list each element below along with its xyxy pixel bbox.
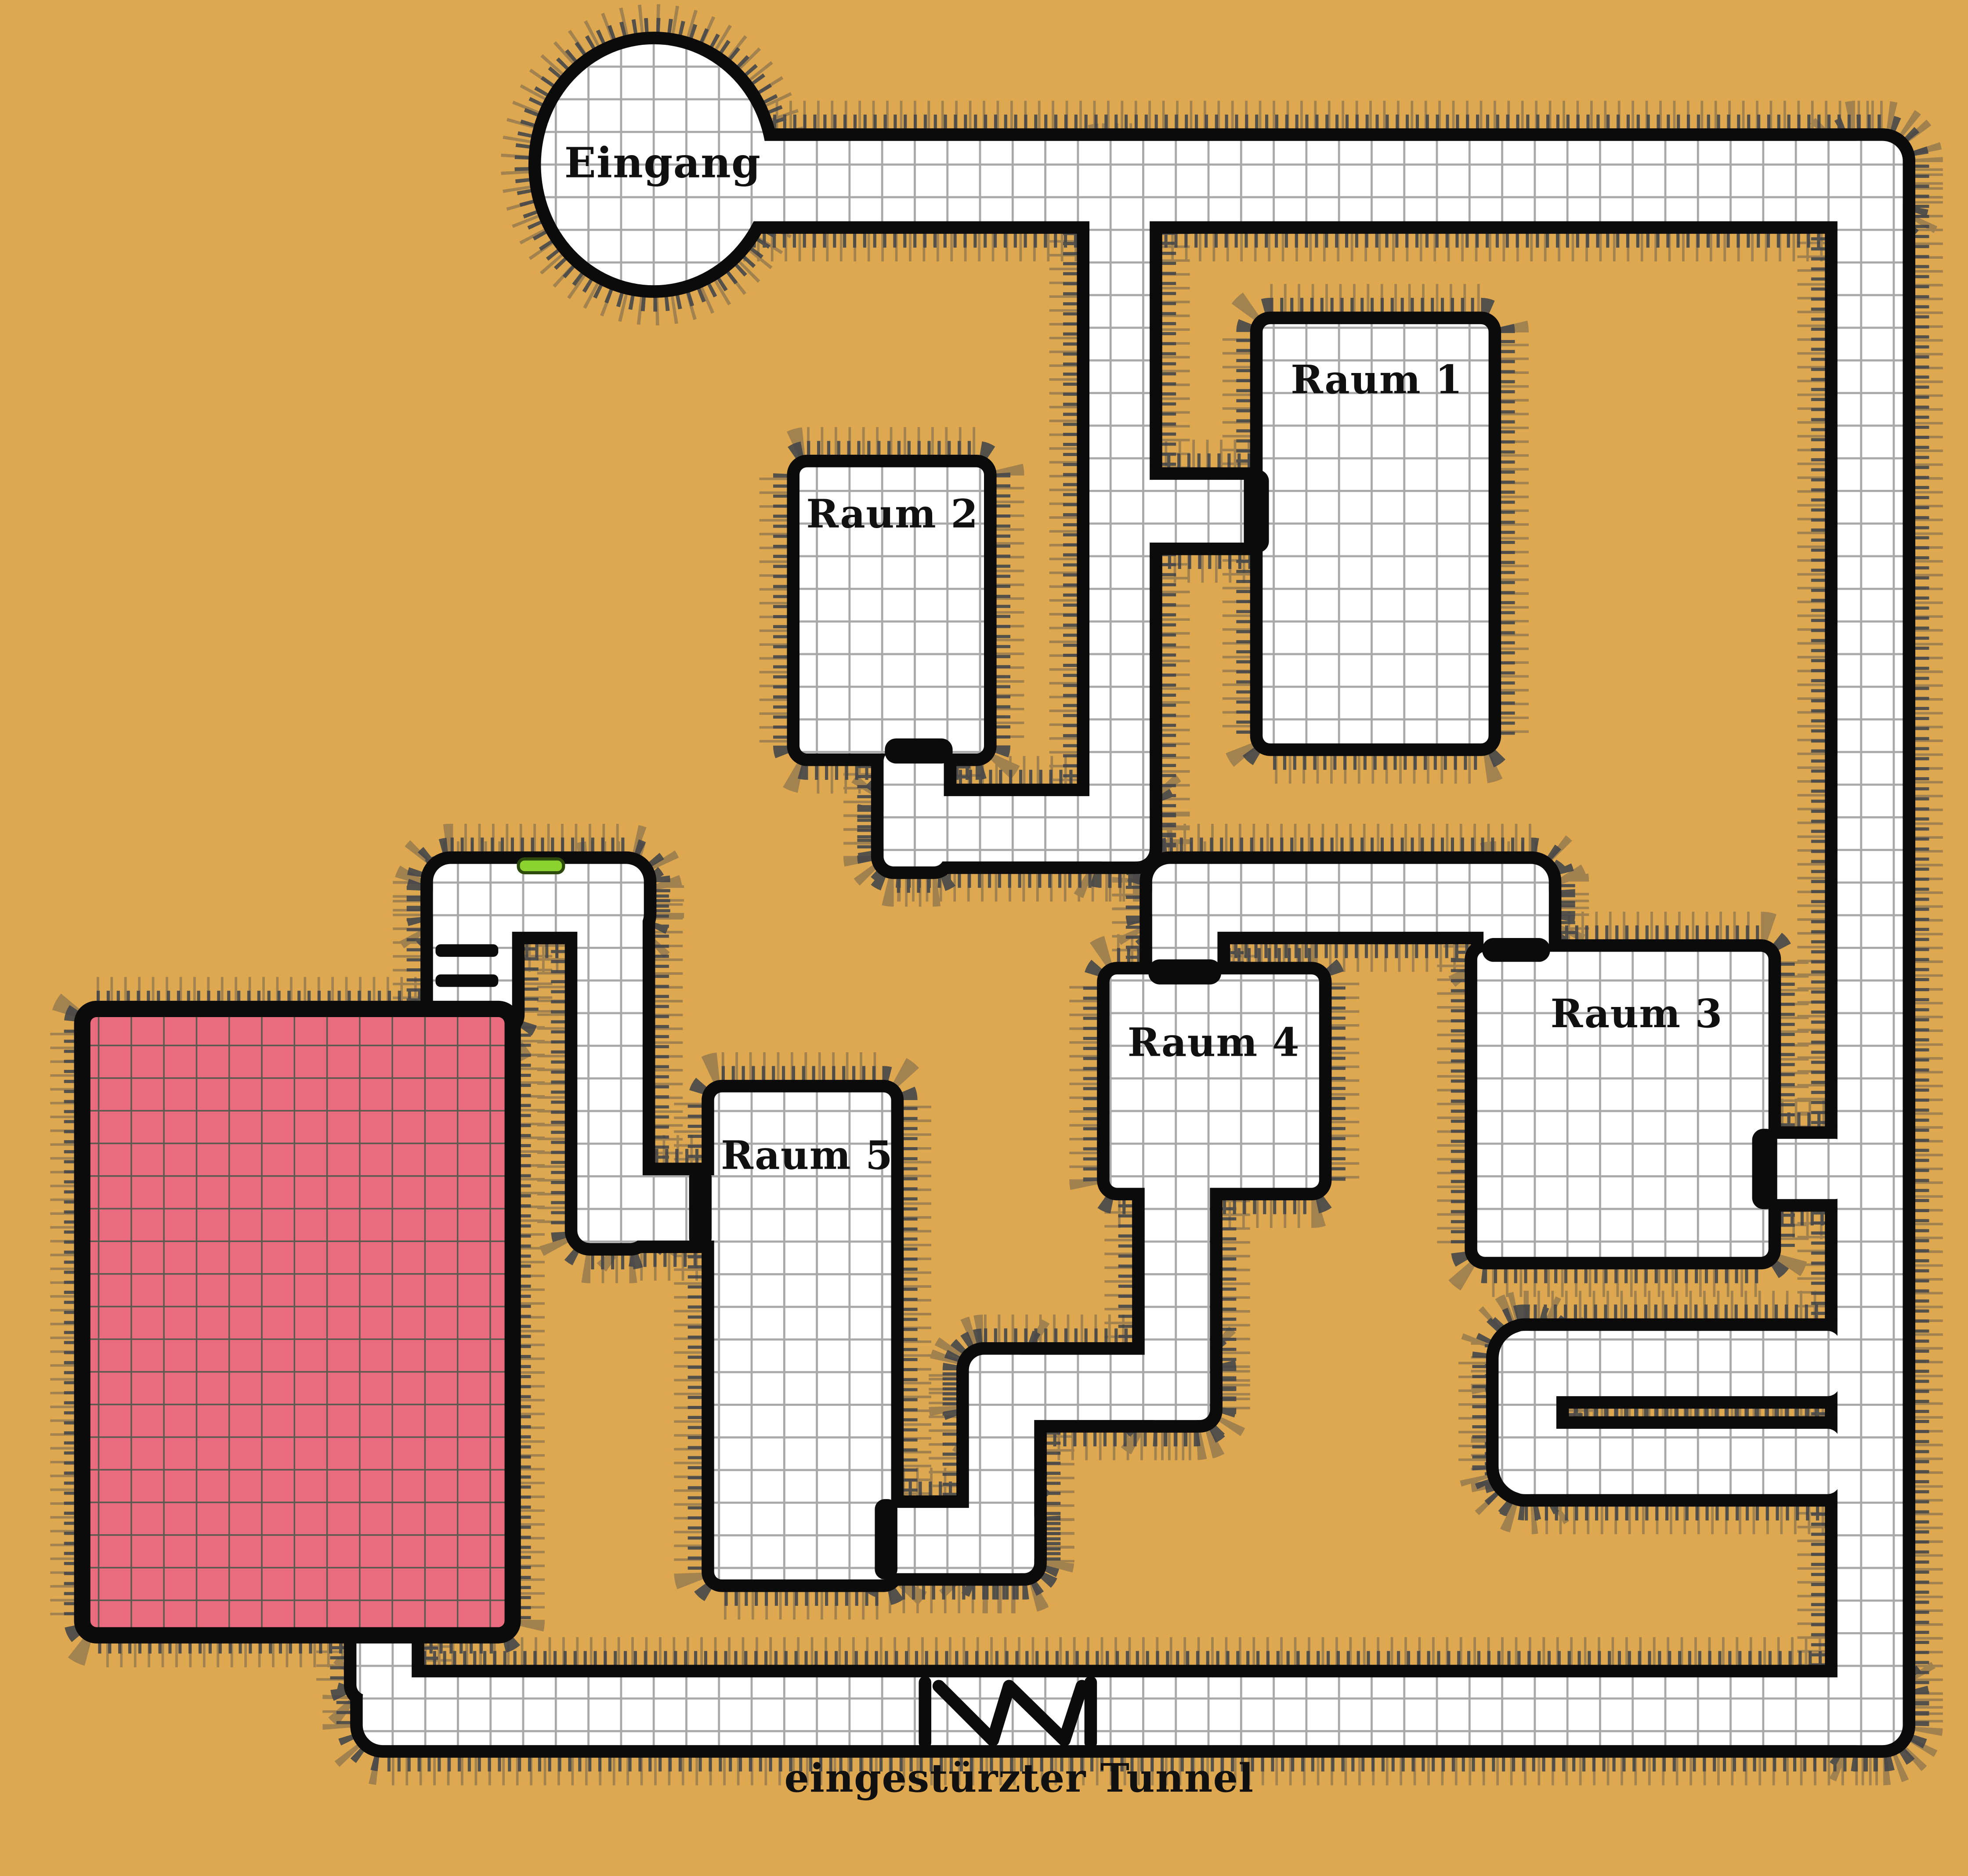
corridor-right-floor xyxy=(1838,141,1903,1745)
label-collapsed-tunnel: eingestürzter Tunnel xyxy=(784,1755,1254,1801)
corridor-serpentine-lower-floor xyxy=(1511,1429,1840,1494)
red-room-floor xyxy=(90,1017,505,1627)
label-room3: Raum 3 xyxy=(1551,991,1723,1036)
corridor-lower-floor xyxy=(883,796,1150,862)
label-room5: Raum 5 xyxy=(721,1133,893,1178)
door-room5-west xyxy=(689,1168,712,1248)
label-room4: Raum 4 xyxy=(1128,1020,1300,1065)
door-room1-west xyxy=(1244,470,1269,553)
corridor-bottom-floor xyxy=(363,1677,1903,1745)
corridor-serpentine-upper-floor xyxy=(1511,1331,1840,1396)
red-room-group xyxy=(90,1017,505,1627)
door-room4-north xyxy=(1148,960,1221,985)
label-room1: Raum 1 xyxy=(1291,357,1463,402)
door-room3-east xyxy=(1752,1129,1777,1209)
stairs-icon xyxy=(435,944,498,1017)
door-room3-north xyxy=(1482,938,1550,962)
label-entrance: Eingang xyxy=(564,139,761,188)
corridor-serpentine-hairpin-floor xyxy=(1498,1331,1556,1494)
green-slime-marker-icon xyxy=(518,859,564,873)
corridor-to-room5-floor xyxy=(625,1175,728,1241)
door-room2-south xyxy=(885,739,952,764)
dungeon-map: Eingang Raum 1 Raum 2 Raum 3 Raum 4 Raum… xyxy=(0,0,1968,1876)
corridor-top-floor xyxy=(673,141,1903,221)
door-room5-east xyxy=(875,1499,897,1579)
label-room2: Raum 2 xyxy=(806,491,978,537)
room4-floor xyxy=(1110,974,1319,1188)
corridor-zigzag-lower-floor xyxy=(879,1508,1034,1573)
